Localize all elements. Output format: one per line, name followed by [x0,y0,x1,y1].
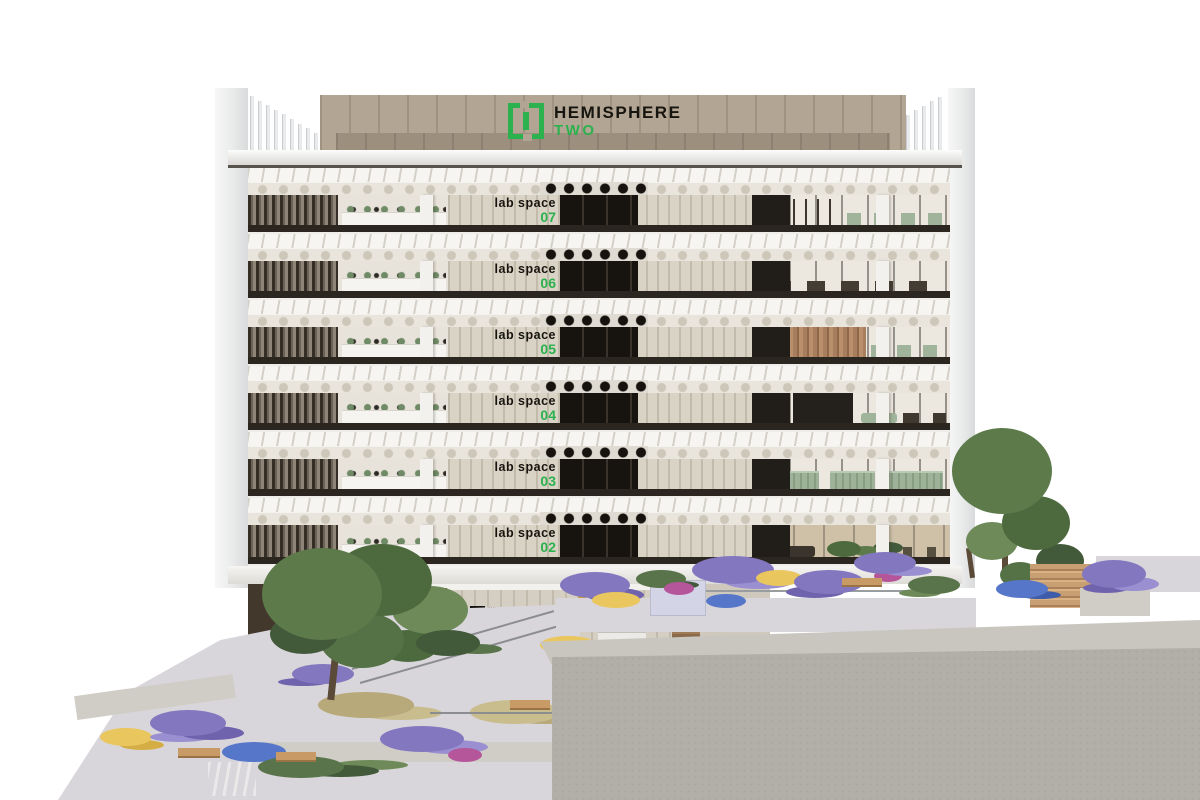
floor-interior: lab space 04 [248,393,950,425]
column [876,393,889,425]
floor-interior: lab space 06 [248,261,950,293]
architectural-render: HEMISPHERE TWO lab space 07 [0,0,1200,800]
wooden-bench [510,700,550,710]
floor-slab [248,225,950,234]
floor-number: 05 [540,342,556,357]
floor-interior: lab space 07 [248,195,950,227]
ceiling [248,300,950,314]
beam-dark-holes [540,380,648,393]
beam-dark-holes [540,314,648,327]
lab-zone [248,459,448,491]
wooden-bench [276,752,316,762]
beam-dark-holes [540,182,648,195]
core-door [752,261,790,293]
shrub-bed [908,576,960,594]
column [420,525,433,559]
floor-section-05: lab space 05 [248,300,950,366]
flower-bed-lavender [150,710,226,736]
ceiling [248,432,950,446]
lab-zone [248,393,448,425]
elevator-shaft [560,261,638,293]
flower-bed-lavender [1082,560,1146,588]
lab-zone [248,261,448,293]
lounge-zone [763,525,950,559]
floor-section-04: lab space 04 [248,366,950,432]
beam-dark-holes [540,248,648,261]
meeting-zone [763,261,950,293]
floor-label: lab space 05 [448,329,556,357]
floor-label: lab space 03 [448,461,556,489]
floor-number: 04 [540,408,556,423]
ceiling [248,168,950,182]
flower-bed-magenta [664,582,694,595]
lab-zone [248,195,448,227]
elevator-shaft [560,327,638,359]
column [876,261,889,293]
indoor-plants [827,541,861,557]
lab-zone [248,327,448,359]
seating-block [830,471,875,489]
shrub-cluster [416,630,480,656]
meeting-zone [763,393,950,425]
floor-slab [248,291,950,300]
core-door [752,459,790,491]
tree-canopy [952,428,1052,514]
column [420,195,433,227]
ceiling [248,498,950,512]
column [876,459,889,491]
column [876,327,889,359]
flower-bed-lavender [854,552,916,574]
floor-number: 02 [540,540,556,555]
floor-number: 06 [540,276,556,291]
floor-slab [248,423,950,432]
roof-fin [250,96,254,158]
rooftop-sign: HEMISPHERE TWO [508,103,681,139]
floor-label: lab space 07 [448,197,556,225]
floor-interior: lab space 03 [248,459,950,491]
elevator-shaft [560,393,638,425]
floor-section-07: lab space 07 [248,168,950,234]
core-door [752,393,790,425]
floor-slab [248,357,950,366]
flower-bed-lavender [292,664,354,684]
seating-block [886,471,942,489]
column [420,393,433,425]
core-door [752,525,790,559]
stair-planter [1080,588,1150,616]
sign-line2: TWO [554,123,681,138]
ceiling [248,366,950,380]
terrace-railing [430,712,560,714]
breakout-zone [763,327,950,359]
ceiling [248,234,950,248]
floor-label: lab space 02 [448,527,556,555]
floor-label: lab space 04 [448,395,556,423]
tree-trunk [1002,538,1008,578]
wooden-bench [842,578,882,587]
bike-racks [208,762,256,796]
elevator-shaft [560,195,638,227]
floor-section-03: lab space 03 [248,432,950,498]
roof-slab [228,150,962,168]
sage-chairs [847,213,946,225]
column [420,261,433,293]
meeting-room [793,393,853,425]
roof-fin [938,97,942,158]
sign-line1: HEMISPHERE [554,104,681,121]
auditorium-zone [763,459,950,491]
floor-interior: lab space 05 [248,327,950,359]
column [876,195,889,227]
flower-bed-lavender [380,726,464,752]
tree-canopy [262,548,382,640]
elevator-shaft [560,525,638,559]
flower-bed-magenta [448,748,482,762]
flower-bed-blue [996,580,1048,598]
floor-slab [248,489,950,498]
column [420,459,433,491]
elevator-shaft [560,459,638,491]
floor-label: lab space 06 [448,263,556,291]
beam-dark-holes [540,512,648,525]
floor-number: 03 [540,474,556,489]
office-zone [763,195,950,227]
floor-section-06: lab space 06 [248,234,950,300]
hemisphere-logo-icon [508,103,544,139]
flower-bed-yellow [100,728,152,746]
beam-dark-holes [540,446,648,459]
column [420,327,433,359]
flower-bed-yellow [592,592,640,608]
flower-bed-blue [706,594,746,608]
dark-furniture [773,281,940,291]
core-door [752,195,790,227]
concrete-block [552,648,1200,800]
wooden-bench [178,748,220,758]
core-door [752,327,790,359]
dark-tables [903,413,946,423]
floor-number: 07 [540,210,556,225]
